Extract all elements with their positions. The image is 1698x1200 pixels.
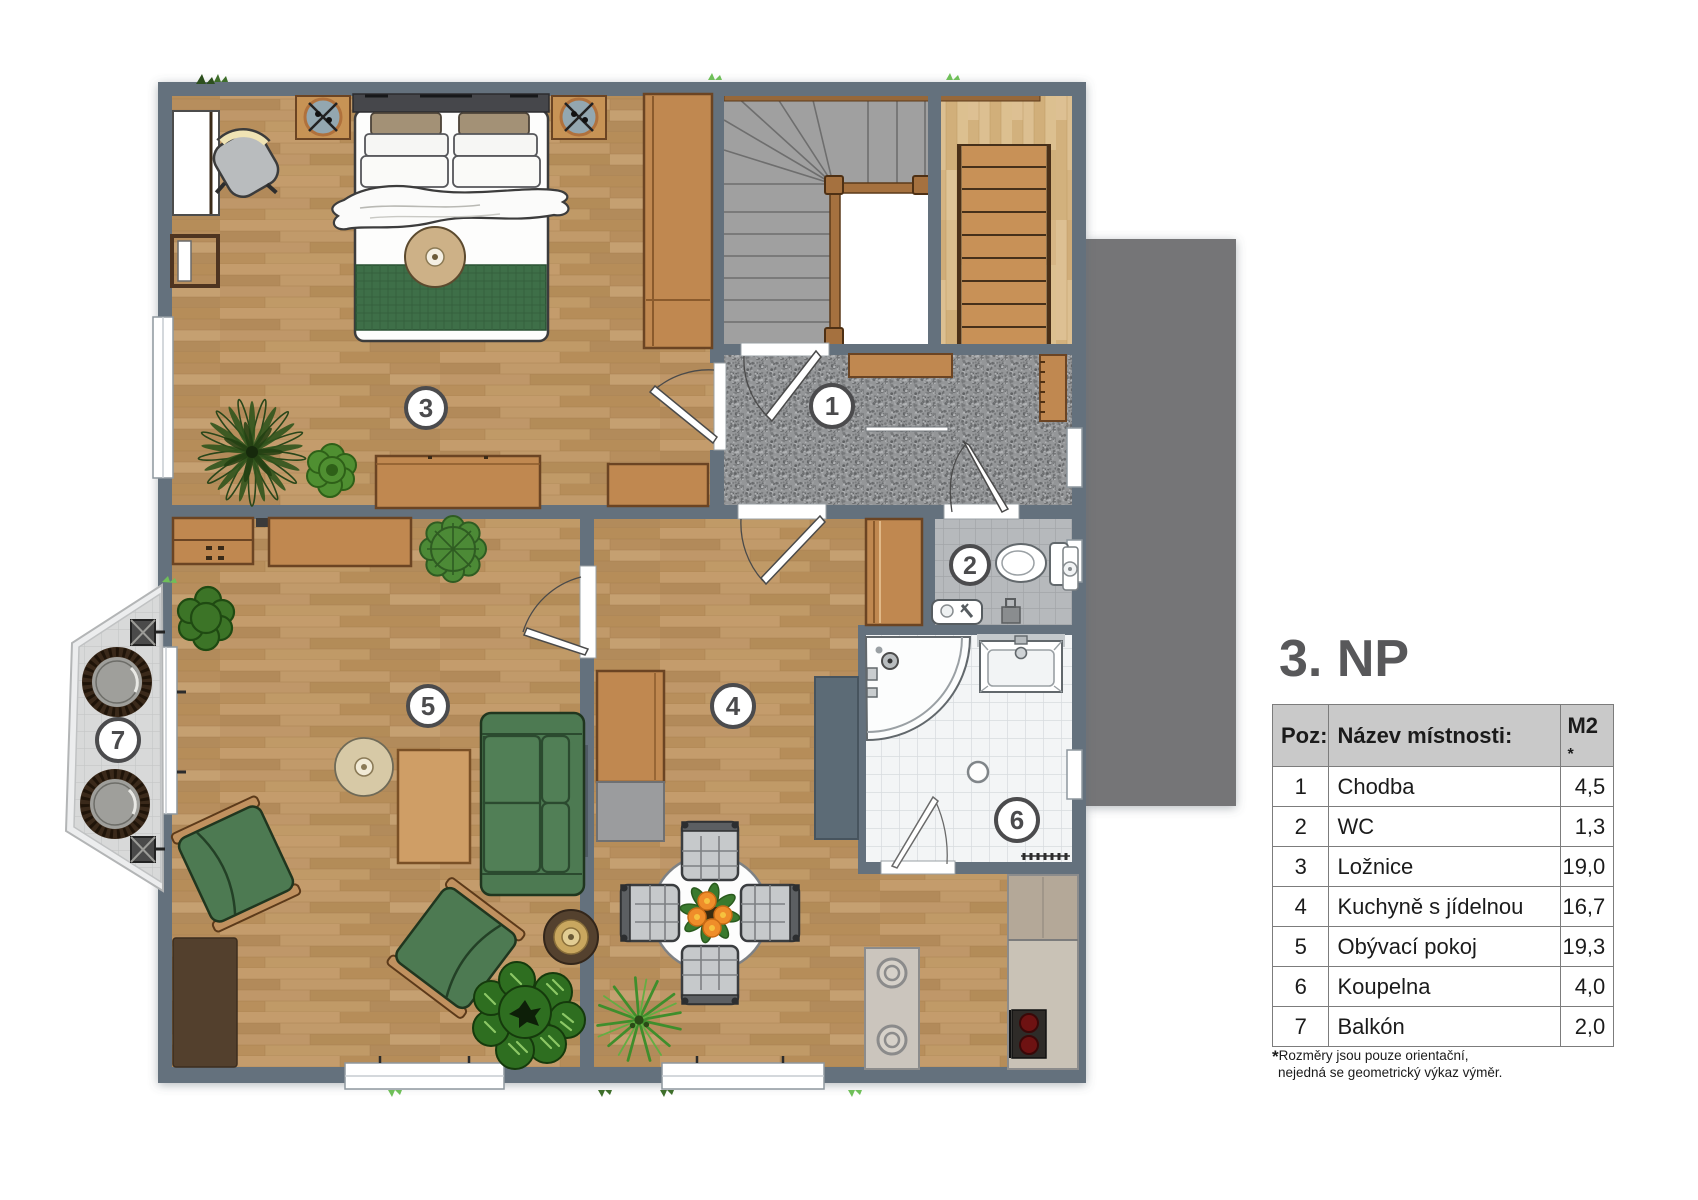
svg-text:3: 3 bbox=[419, 393, 433, 423]
svg-text:5: 5 bbox=[421, 691, 435, 721]
svg-text:4: 4 bbox=[726, 691, 741, 721]
svg-text:6: 6 bbox=[1010, 805, 1024, 835]
svg-text:1: 1 bbox=[825, 391, 839, 421]
svg-text:7: 7 bbox=[111, 725, 125, 755]
svg-text:2: 2 bbox=[963, 552, 977, 580]
